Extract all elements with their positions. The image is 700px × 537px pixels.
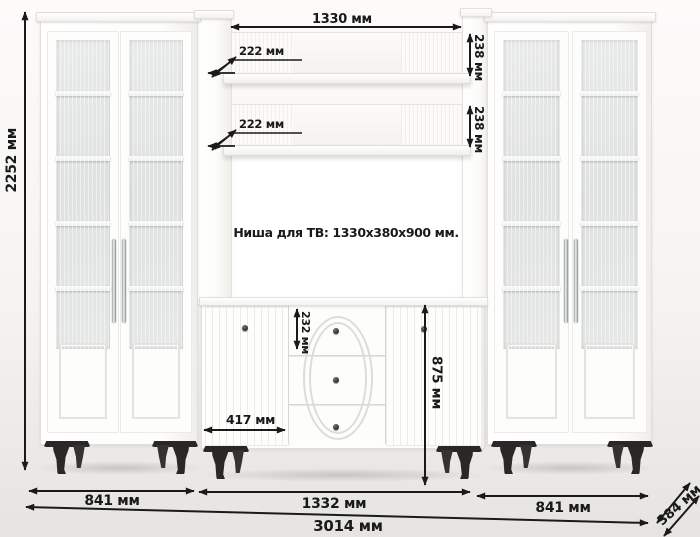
dim-shelf-depth-upper: 222 мм <box>239 46 284 58</box>
cabinet-leg <box>607 441 653 474</box>
drawer-knob <box>333 424 339 430</box>
door-handle <box>564 239 568 323</box>
dim-total-height: 2252 мм <box>5 128 19 193</box>
fluted-panel-right <box>401 33 463 75</box>
lower-shelf-board <box>223 145 471 156</box>
right-cabinet-door-left <box>494 31 569 433</box>
cabinet-leg <box>491 441 537 474</box>
glass-panel <box>56 40 110 349</box>
door-knob <box>242 325 248 331</box>
glass-panel <box>503 40 560 349</box>
door-bottom-panel <box>59 343 107 419</box>
dim-shelf-opening-width: 1330 мм <box>312 13 372 26</box>
glass-panel <box>129 40 183 349</box>
glass-panel <box>581 40 638 349</box>
dim-top-drawer-height: 232 мм <box>300 311 311 354</box>
door-bottom-panel <box>584 343 635 419</box>
fluted-glass-texture <box>503 40 560 349</box>
cabinet-leg <box>44 441 90 474</box>
dim-total-width: 3014 мм <box>300 519 396 534</box>
fluted-glass-texture <box>56 40 110 349</box>
left-display-cabinet <box>40 15 198 445</box>
furniture-dimension-diagram: 1330 мм 222 мм 222 мм 238 мм 238 мм 2252… <box>0 0 700 537</box>
drawer-knob <box>333 377 339 383</box>
sideboard-top <box>199 297 488 306</box>
door-handle <box>122 239 126 323</box>
door-bottom-panel <box>132 343 180 419</box>
door-handle <box>574 239 578 323</box>
center-left-pillar-cap <box>194 10 234 19</box>
dim-sideboard-door-width: 417 мм <box>226 414 275 427</box>
dim-shelf-depth-lower: 222 мм <box>239 119 284 131</box>
left-cabinet-crown <box>36 12 201 22</box>
fluted-glass-texture <box>581 40 638 349</box>
drawer-knob <box>333 328 339 334</box>
door-handle <box>112 239 116 323</box>
fluted-glass-texture <box>129 40 183 349</box>
center-right-pillar-cap <box>460 8 492 17</box>
left-cabinet-door-left <box>47 31 119 433</box>
door-knob <box>421 326 427 332</box>
right-display-cabinet <box>487 15 652 445</box>
center-left-pillar <box>196 13 232 305</box>
cabinet-leg <box>152 441 198 474</box>
sideboard-leg <box>436 446 482 479</box>
tv-niche-note: Ниша для ТВ: 1330x380x900 мм. <box>230 227 462 240</box>
dim-depth: 384 мм <box>655 483 700 529</box>
upper-shelf-board <box>223 73 471 84</box>
dim-left-cabinet-width: 841 мм <box>70 494 154 508</box>
right-cabinet-door-right <box>572 31 647 433</box>
dim-right-cabinet-width: 841 мм <box>521 501 605 515</box>
dim-sideboard-width: 1332 мм <box>292 497 376 511</box>
dim-shelf-clearance-lower: 238 мм <box>473 106 485 153</box>
door-bottom-panel <box>506 343 557 419</box>
fluted-panel-right <box>401 105 463 147</box>
sideboard-leg <box>203 446 249 479</box>
dim-sideboard-height: 875 мм <box>429 356 443 409</box>
right-cabinet-crown <box>484 12 656 22</box>
dim-shelf-clearance-upper: 238 мм <box>473 34 485 81</box>
left-cabinet-door-right <box>120 31 192 433</box>
